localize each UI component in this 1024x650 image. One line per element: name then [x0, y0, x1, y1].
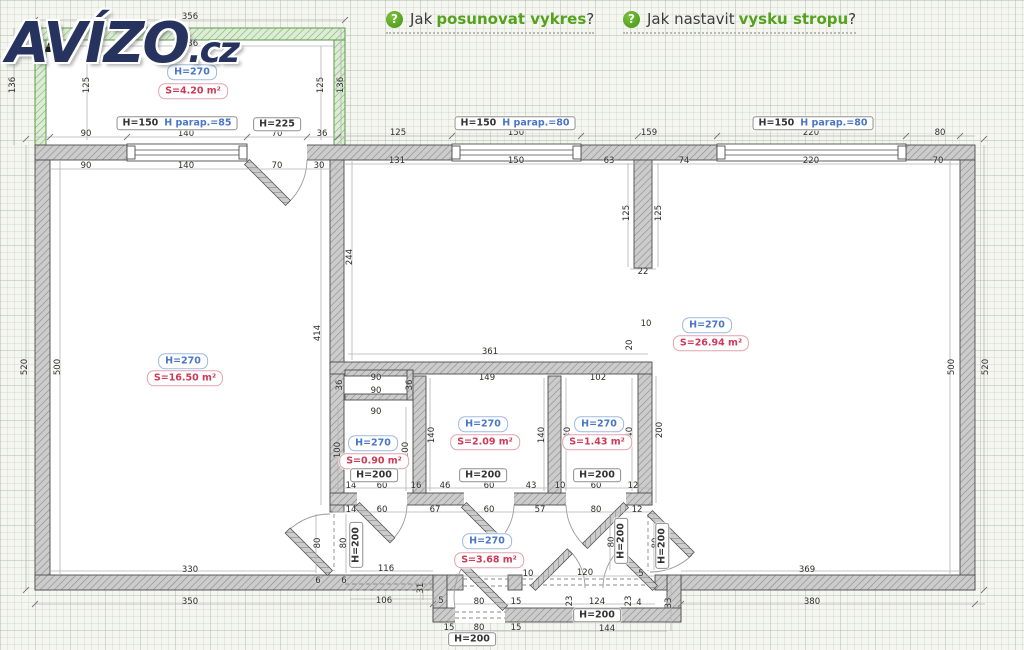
room-height-label: H=270: [348, 435, 398, 451]
dim-label: 60: [377, 506, 388, 515]
dim-label: 5: [638, 570, 643, 579]
label-text: S=1.43 m²: [569, 436, 625, 447]
dim-label: 125: [623, 205, 632, 221]
dim-label: 520: [21, 359, 30, 375]
dim-label: 124: [589, 598, 605, 607]
dim-label: 140: [538, 427, 547, 443]
dim-label: 102: [590, 374, 606, 383]
label-text: H=270: [465, 418, 501, 429]
dim-label: 131: [389, 157, 405, 166]
dim-label: 16: [411, 482, 422, 491]
dim-label: 4: [636, 599, 641, 608]
dim-label: 60: [484, 482, 495, 491]
dim-label: 125: [655, 205, 664, 221]
dim-label: 520: [982, 359, 991, 375]
dim-label: 120: [577, 569, 593, 578]
dim-label: 31: [417, 583, 426, 594]
label-text: H=200: [465, 469, 501, 480]
room-height-label: H=270: [462, 533, 512, 549]
label-text: H=200: [356, 469, 392, 480]
logo-text: AVÍZO: [6, 11, 188, 76]
dim-label: 125: [317, 77, 326, 93]
room-area-label: S=3.68 m²: [454, 552, 524, 568]
dim-label: 330: [182, 566, 198, 575]
dim-label: 67: [430, 506, 441, 515]
window-height-label: H=150H parap.=80: [753, 116, 874, 130]
opening-height-label: H=200: [350, 468, 398, 482]
dim-label: 80: [935, 129, 946, 138]
dim-label: 150: [508, 129, 524, 138]
dim-label: 414: [314, 325, 323, 341]
dim-label: 12: [628, 482, 639, 491]
dim-label: 500: [948, 359, 957, 375]
label-text: H=200: [615, 523, 626, 559]
help-text-prefix: Jak: [410, 10, 432, 28]
dim-label: 106: [376, 597, 392, 606]
dim-label: 144: [599, 625, 615, 634]
room-area-label: S=16.50 m²: [147, 370, 223, 386]
dim-label: 6: [341, 577, 346, 586]
label-text: H=270: [165, 355, 201, 366]
room-height-label: H=270: [574, 416, 624, 432]
opening-height-label: H=200: [448, 632, 496, 646]
help-text-suffix: ?: [586, 10, 594, 28]
opening-height-label: H=200: [573, 468, 621, 482]
dim-label: 70: [933, 157, 944, 166]
opening-height-label: H=200: [573, 608, 621, 622]
dim-label: 140: [178, 162, 194, 171]
help-text-suffix: ?: [848, 10, 856, 28]
dim-label: 80: [314, 538, 323, 549]
dim-label: 23: [566, 596, 575, 607]
dim-label: 60: [484, 506, 495, 515]
dim-label: 244: [346, 249, 355, 265]
question-icon: ?: [386, 11, 403, 28]
label-text: S=4.20 m²: [165, 85, 221, 96]
dim-label: 6: [315, 577, 320, 586]
dim-label: 159: [641, 129, 657, 138]
dim-label: 80: [591, 506, 602, 515]
dim-label: 63: [604, 157, 615, 166]
dim-label: 380: [804, 598, 820, 607]
dim-label: 140: [428, 427, 437, 443]
opening-height-label: H=200: [614, 518, 628, 564]
dim-label: 74: [679, 157, 690, 166]
dim-label: 36: [336, 380, 345, 391]
dim-label: 12: [632, 506, 643, 515]
dim-label: 15: [511, 598, 522, 607]
label-text: H=225: [259, 118, 295, 129]
dim-label: 116: [378, 565, 394, 574]
dim-label: 14: [346, 506, 357, 515]
label-text: H=270: [581, 418, 617, 429]
label-text: S=16.50 m²: [154, 372, 216, 383]
label-text: H=270: [355, 437, 391, 448]
dim-label: 90: [371, 374, 382, 383]
dim-label: 22: [638, 268, 649, 277]
dim-label: 220: [803, 129, 819, 138]
label-text: H=200: [454, 633, 490, 644]
label-text: H=200: [579, 469, 615, 480]
dim-label: 125: [390, 129, 406, 138]
help-link-ceiling-height[interactable]: ? Jak nastavit vysku stropu?: [623, 10, 856, 34]
dim-label: 90: [81, 130, 92, 139]
help-text-prefix: Jak nastavit: [647, 10, 735, 28]
label-text: S=2.09 m²: [457, 436, 513, 447]
dim-label: 60: [377, 482, 388, 491]
dim-label: 43: [526, 482, 537, 491]
dim-label: 149: [479, 374, 495, 383]
opening-height-label: H=225: [253, 117, 301, 131]
label-text: S=26.94 m²: [680, 337, 742, 348]
dim-label: 36: [317, 130, 328, 139]
dim-label: 369: [799, 566, 815, 575]
parapet-height-text: H parap.=80: [502, 117, 569, 128]
room-area-label: S=1.43 m²: [562, 434, 632, 450]
dim-label: 125: [83, 77, 92, 93]
opening-height-label: H=200: [655, 523, 669, 569]
dim-label: 150: [508, 157, 524, 166]
dim-label: 30: [314, 162, 325, 171]
avizo-logo: AVÍZO.cz: [6, 16, 238, 72]
dim-label: 70: [272, 162, 283, 171]
help-text-bold: vysku stropu: [739, 10, 849, 28]
dim-label: 500: [54, 359, 63, 375]
room-height-label: H=270: [158, 353, 208, 369]
dim-label: 90: [371, 387, 382, 396]
dim-label: 220: [803, 157, 819, 166]
dim-label: 70: [272, 130, 283, 139]
dim-label: 90: [371, 408, 382, 417]
dim-label: 10: [523, 570, 534, 579]
label-text: S=0.90 m²: [346, 455, 402, 466]
question-icon: ?: [623, 11, 640, 28]
dim-label: 80: [340, 538, 349, 549]
room-area-label: S=26.94 m²: [673, 335, 749, 351]
dim-label: 15: [444, 624, 455, 633]
room-height-label: H=270: [458, 416, 508, 432]
label-text: H=200: [579, 609, 615, 620]
dim-label: 15: [511, 624, 522, 633]
label-text: H=200: [656, 528, 667, 564]
window-height-label: H=150H parap.=85: [117, 116, 238, 130]
dim-label: 33: [665, 598, 674, 609]
dim-label: 60: [591, 482, 602, 491]
dim-label: 14: [346, 482, 357, 491]
dim-label: 136: [337, 77, 346, 93]
label-text: H=150: [123, 117, 159, 128]
room-area-label: S=4.20 m²: [158, 83, 228, 99]
floorplan-canvas[interactable]: 3563361361251251369014070369014070301251…: [0, 0, 1024, 650]
dim-label: 20: [626, 340, 635, 351]
dim-label: 200: [656, 422, 665, 438]
dim-label: 10: [555, 482, 566, 491]
help-text-bold: posunovat vykres: [436, 10, 586, 28]
dim-label: 136: [9, 77, 18, 93]
label-text: S=3.68 m²: [461, 554, 517, 565]
dim-label: 5: [438, 597, 443, 606]
label-text: H=150: [759, 117, 795, 128]
dim-label: 361: [482, 348, 498, 357]
label-text: H=270: [469, 535, 505, 546]
room-height-label: H=270: [682, 317, 732, 333]
dim-label: 90: [81, 162, 92, 171]
window-1: [127, 144, 247, 161]
window-height-label: H=150H parap.=80: [455, 116, 576, 130]
dim-label: 350: [182, 598, 198, 607]
dim-label: 80: [474, 624, 485, 633]
dim-label: 140: [178, 130, 194, 139]
dim-label: 36: [406, 380, 415, 391]
dim-label: 80: [474, 598, 485, 607]
label-text: H=200: [350, 527, 361, 563]
dim-label: 46: [440, 482, 451, 491]
dim-label: 57: [535, 506, 546, 515]
dim-label: 10: [641, 320, 652, 329]
opening-height-label: H=200: [349, 522, 363, 568]
room-area-label: S=0.90 m²: [339, 453, 409, 469]
parapet-height-text: H parap.=85: [164, 117, 231, 128]
label-text: H=150: [461, 117, 497, 128]
parapet-height-text: H parap.=80: [800, 117, 867, 128]
help-link-move-drawing[interactable]: ? Jak posunovat vykres?: [386, 10, 594, 34]
logo-suffix: .cz: [188, 30, 238, 71]
label-text: H=270: [689, 319, 725, 330]
dim-label: 23: [625, 596, 634, 607]
room-area-label: S=2.09 m²: [450, 434, 520, 450]
opening-height-label: H=200: [459, 468, 507, 482]
